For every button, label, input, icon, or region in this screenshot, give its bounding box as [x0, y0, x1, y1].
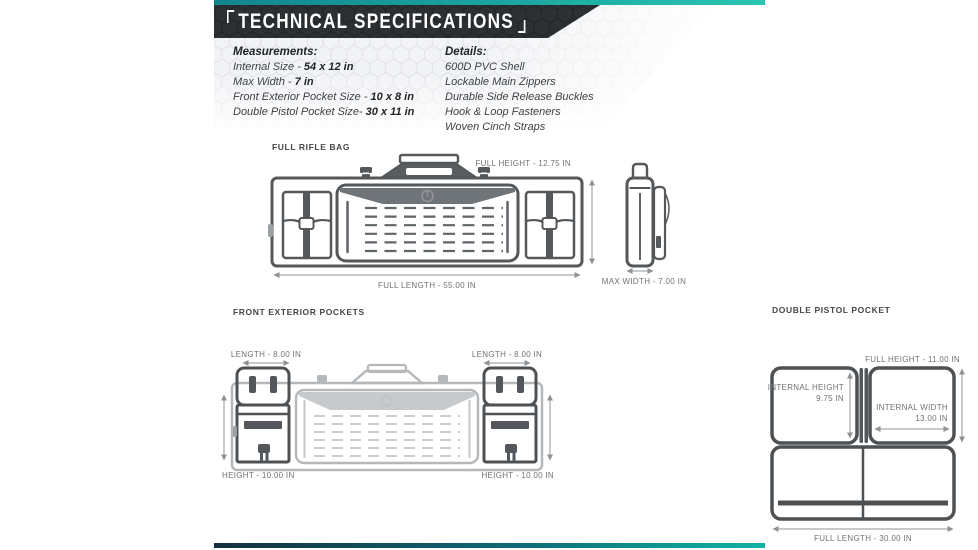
header-banner: TECHNICAL SPECIFICATIONS	[214, 5, 600, 38]
title-wrap: TECHNICAL SPECIFICATIONS	[227, 10, 525, 33]
max-width-label: MAX WIDTH - 7.00 IN	[602, 277, 686, 286]
details-block: Details: 600D PVC Shell Lockable Main Zi…	[445, 45, 594, 135]
measurement-value: 30 x 11 in	[366, 106, 415, 118]
bottom-accent-bar	[214, 543, 765, 548]
side-tab	[268, 224, 273, 237]
pp-full-length-label: FULL LENGTH - 30.00 IN	[814, 534, 912, 543]
page-title: TECHNICAL SPECIFICATIONS	[238, 11, 514, 33]
center-panel	[337, 185, 518, 261]
measurement-value: 7 in	[295, 76, 314, 88]
measurement-item: Internal Size - 54 x 12 in	[233, 60, 414, 75]
height-left-label: HEIGHT - 10.00 IN	[222, 471, 295, 480]
pistol-pocket-title: DOUBLE PISTOL POCKET	[772, 305, 891, 315]
molle-webbing-light	[314, 416, 460, 456]
measurement-item: Double Pistol Pocket Size- 30 x 11 in	[233, 105, 414, 120]
side-tab	[233, 426, 237, 437]
measurement-label: Double Pistol Pocket Size-	[233, 106, 366, 118]
full-rifle-bag-diagram: FULL RIFLE BAG FULL HEIGHT - 12.75 IN	[214, 130, 765, 300]
full-height-label: FULL HEIGHT - 12.75 IN	[475, 159, 571, 168]
measurement-item: Max Width - 7 in	[233, 75, 414, 90]
measurement-item: Front Exterior Pocket Size - 10 x 8 in	[233, 90, 414, 105]
detail-item: Lockable Main Zippers	[445, 75, 594, 90]
height-right-label: HEIGHT - 10.00 IN	[481, 471, 554, 480]
measurement-value: 54 x 12 in	[304, 61, 354, 73]
pp-full-height-label: FULL HEIGHT - 11.00 IN	[865, 355, 960, 364]
full-length-label: FULL LENGTH - 55.00 IN	[378, 281, 476, 290]
internal-height-label: INTERNAL HEIGHT	[768, 383, 844, 392]
left-exterior-pocket	[283, 192, 331, 258]
side-pocket	[654, 187, 665, 259]
measurement-label: Front Exterior Pocket Size -	[233, 91, 371, 103]
details-heading: Details:	[445, 45, 594, 60]
ghost-bag-silhouette	[232, 365, 542, 470]
top-handle-tab	[633, 164, 647, 178]
measurement-value: 10 x 8 in	[371, 91, 414, 103]
front-pockets-diagram: FRONT EXTERIOR POCKETS LENGTH - 8.00 IN …	[214, 300, 559, 515]
detail-item: 600D PVC Shell	[445, 60, 594, 75]
double-pistol-pocket-diagram: DOUBLE PISTOL POCKET FULL HEIGHT - 11.00…	[764, 298, 978, 550]
bracket-right-icon	[518, 20, 525, 33]
measurements-heading: Measurements:	[233, 45, 414, 60]
header-title-row: TECHNICAL SPECIFICATIONS	[214, 5, 600, 38]
bag-handle	[381, 155, 477, 178]
front-pockets-title: FRONT EXTERIOR POCKETS	[233, 307, 365, 317]
specs-section: Measurements: Internal Size - 54 x 12 in…	[214, 45, 765, 133]
molle-webbing	[365, 208, 503, 251]
side-view-drawing: MAX WIDTH - 7.00 IN	[602, 164, 686, 286]
center-divider	[865, 368, 869, 443]
detail-item: Hook & Loop Fasteners	[445, 105, 594, 120]
measurements-block: Measurements: Internal Size - 54 x 12 in…	[233, 45, 414, 120]
internal-width-label: INTERNAL WIDTH	[876, 403, 948, 412]
spec-sheet-page: TECHNICAL SPECIFICATIONS Measurements: I…	[0, 0, 978, 550]
buckle-icon	[258, 444, 270, 453]
pistol-pocket-top-section: INTERNAL HEIGHT 9.75 IN INTERNAL WIDTH 1…	[768, 368, 962, 443]
measurement-label: Max Width -	[233, 76, 295, 88]
content-column: TECHNICAL SPECIFICATIONS Measurements: I…	[214, 0, 765, 550]
detail-item: Durable Side Release Buckles	[445, 90, 594, 105]
measurement-label: Internal Size -	[233, 61, 304, 73]
pistol-pocket-bottom-section	[772, 447, 954, 519]
top-accent-bar	[214, 0, 765, 5]
internal-height-value: 9.75 IN	[816, 394, 844, 403]
full-rifle-bag-title: FULL RIFLE BAG	[272, 142, 350, 152]
buckle-icon	[505, 444, 517, 453]
internal-width-value: 13.00 IN	[915, 414, 948, 423]
bracket-left-icon	[227, 10, 234, 23]
center-divider	[860, 368, 864, 443]
right-exterior-pocket	[526, 192, 574, 258]
length-right-label: LENGTH - 8.00 IN	[472, 350, 542, 359]
length-left-label: LENGTH - 8.00 IN	[231, 350, 301, 359]
